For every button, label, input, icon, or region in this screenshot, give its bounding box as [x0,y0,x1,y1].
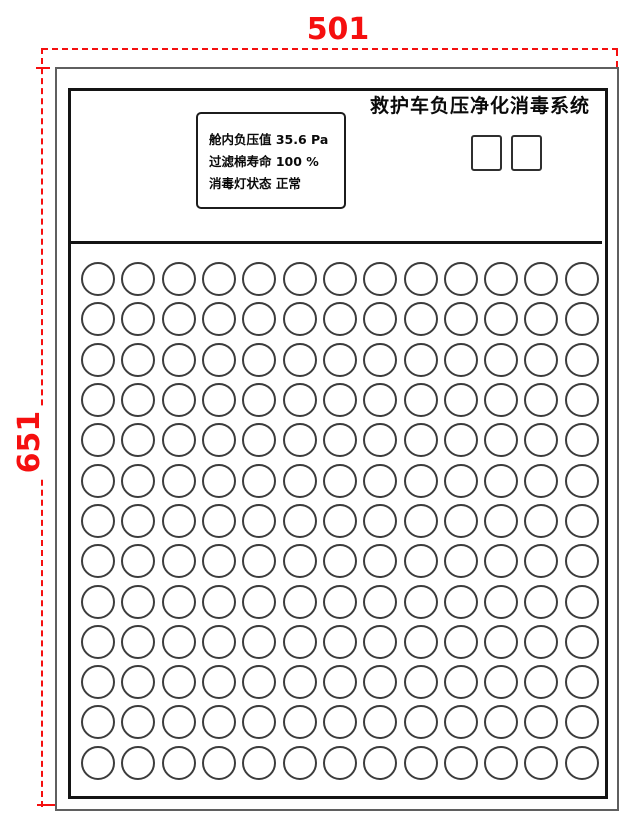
vent-hole [162,343,196,377]
vent-hole [162,383,196,417]
vent-hole [202,464,236,498]
vent-hole [202,504,236,538]
vent-hole [81,383,115,417]
vent-hole [242,544,276,578]
vent-hole [363,544,397,578]
vent-hole [404,302,438,336]
vent-hole [202,705,236,739]
vent-hole [81,343,115,377]
vent-hole [121,705,155,739]
display-line-filter-life: 过滤棉寿命 100 % [209,151,344,173]
vent-hole [323,705,357,739]
vent-hole [121,625,155,659]
vent-hole [202,665,236,699]
vent-hole [404,705,438,739]
vent-hole [81,423,115,457]
vent-hole [565,705,599,739]
vent-hole [81,625,115,659]
vent-hole [524,746,558,780]
vent-hole [444,504,478,538]
vent-hole [484,746,518,780]
vent-hole [202,585,236,619]
vent-hole [323,383,357,417]
vent-hole [363,343,397,377]
vent-hole [242,262,276,296]
vent-hole [202,262,236,296]
vent-hole [363,504,397,538]
vent-hole [323,746,357,780]
vent-hole [323,262,357,296]
vent-hole [202,423,236,457]
vent-hole [323,464,357,498]
vent-hole [363,585,397,619]
vent-hole [202,746,236,780]
vent-hole [162,585,196,619]
vent-hole [242,423,276,457]
vent-hole [524,504,558,538]
vent-hole [404,544,438,578]
vent-hole [81,585,115,619]
vent-hole [484,504,518,538]
vent-hole [323,544,357,578]
vent-hole [283,343,317,377]
vent-hole [404,383,438,417]
vent-hole [404,423,438,457]
vent-hole [121,262,155,296]
vent-hole [565,464,599,498]
vent-hole [565,302,599,336]
vent-hole [444,585,478,619]
vent-hole [81,464,115,498]
vent-hole [565,423,599,457]
vent-hole [202,544,236,578]
vent-hole [444,464,478,498]
vent-hole [363,464,397,498]
vent-hole [404,262,438,296]
vent-hole [283,746,317,780]
vent-hole [524,262,558,296]
vent-hole [81,504,115,538]
vent-hole [162,423,196,457]
vent-hole [323,665,357,699]
vent-hole [283,585,317,619]
vent-hole [283,625,317,659]
dimension-width-label: 501 [300,13,376,47]
vent-hole [283,262,317,296]
vent-hole [404,625,438,659]
vent-hole [162,705,196,739]
header-separator-line [70,241,602,244]
vent-hole [484,343,518,377]
vent-hole [524,705,558,739]
vent-hole [484,464,518,498]
vent-hole [162,464,196,498]
vent-hole [565,504,599,538]
vent-hole [404,746,438,780]
vent-hole [565,343,599,377]
panel-button-2[interactable] [511,135,542,171]
vent-hole [524,423,558,457]
vent-hole [484,423,518,457]
dimension-line-width [42,48,618,50]
vent-hole [363,705,397,739]
vent-hole [162,544,196,578]
vent-hole [484,665,518,699]
vent-hole [484,302,518,336]
vent-hole [444,262,478,296]
dimension-height-label: 651 [13,407,47,477]
vent-hole [202,383,236,417]
vent-hole [484,585,518,619]
vent-hole [484,625,518,659]
vent-hole [524,544,558,578]
vent-hole [363,423,397,457]
vent-hole [444,746,478,780]
vent-hole [444,383,478,417]
drawing-canvas: 501 651 救护车负压净化消毒系统 舱内负压值 35.6 Pa 过滤棉寿命 … [0,0,643,837]
vent-hole [565,383,599,417]
vent-hole [323,343,357,377]
vent-hole [363,262,397,296]
display-line-pressure: 舱内负压值 35.6 Pa [209,129,344,151]
vent-hole [242,343,276,377]
vent-hole [444,302,478,336]
dimension-tick-top [36,67,50,69]
vent-hole [121,302,155,336]
vent-hole [81,665,115,699]
vent-hole [121,504,155,538]
vent-hole [121,665,155,699]
vent-hole [363,383,397,417]
vent-hole [323,504,357,538]
vent-hole [81,746,115,780]
vent-hole [524,665,558,699]
vent-hole [121,585,155,619]
vent-hole [565,625,599,659]
panel-button-1[interactable] [471,135,502,171]
vent-hole [242,302,276,336]
vent-hole [202,302,236,336]
panel-title: 救护车负压净化消毒系统 [358,91,602,118]
vent-hole [444,625,478,659]
vent-hole [242,464,276,498]
vent-hole [524,343,558,377]
vent-hole [242,585,276,619]
vent-hole [444,544,478,578]
status-display-lines: 舱内负压值 35.6 Pa 过滤棉寿命 100 % 消毒灯状态 正常 [198,114,344,195]
status-display: 舱内负压值 35.6 Pa 过滤棉寿命 100 % 消毒灯状态 正常 [196,112,346,209]
vent-hole [283,705,317,739]
vent-hole [121,746,155,780]
vent-hole [363,665,397,699]
vent-hole [565,585,599,619]
vent-hole [484,262,518,296]
vent-hole [202,343,236,377]
vent-hole [81,302,115,336]
vent-hole [444,343,478,377]
vent-hole [565,665,599,699]
display-line-lamp-status: 消毒灯状态 正常 [209,173,344,195]
vent-hole [323,625,357,659]
vent-hole [363,746,397,780]
vent-hole [81,705,115,739]
vent-hole-grid [78,259,602,783]
vent-hole [283,665,317,699]
vent-hole [323,423,357,457]
vent-hole [524,625,558,659]
vent-hole [283,464,317,498]
vent-hole [81,544,115,578]
vent-hole [404,585,438,619]
vent-hole [565,262,599,296]
vent-hole [121,464,155,498]
vent-hole [524,302,558,336]
vent-hole [81,262,115,296]
vent-hole [121,383,155,417]
dimension-tick-bottom [37,804,56,806]
vent-hole [121,423,155,457]
vent-hole [242,665,276,699]
vent-hole [404,665,438,699]
vent-hole [444,705,478,739]
vent-hole [524,383,558,417]
vent-hole [283,383,317,417]
vent-hole [162,625,196,659]
vent-hole [202,625,236,659]
vent-hole [484,544,518,578]
vent-hole [283,544,317,578]
vent-hole [121,343,155,377]
vent-hole [404,343,438,377]
vent-hole [162,746,196,780]
vent-hole [404,504,438,538]
vent-hole [524,585,558,619]
vent-hole [565,544,599,578]
vent-hole [363,625,397,659]
vent-hole [323,585,357,619]
vent-hole [444,423,478,457]
vent-hole [162,504,196,538]
vent-hole [162,262,196,296]
vent-hole [404,464,438,498]
vent-hole [283,504,317,538]
vent-hole [242,746,276,780]
vent-hole [484,705,518,739]
vent-hole [162,302,196,336]
vent-hole [444,665,478,699]
vent-hole [162,665,196,699]
vent-hole [242,625,276,659]
vent-hole [121,544,155,578]
vent-hole [323,302,357,336]
vent-hole [242,705,276,739]
vent-hole [242,383,276,417]
vent-hole [242,504,276,538]
vent-hole [524,464,558,498]
vent-hole [283,423,317,457]
vent-hole [283,302,317,336]
vent-hole [565,746,599,780]
vent-hole [484,383,518,417]
vent-hole [363,302,397,336]
